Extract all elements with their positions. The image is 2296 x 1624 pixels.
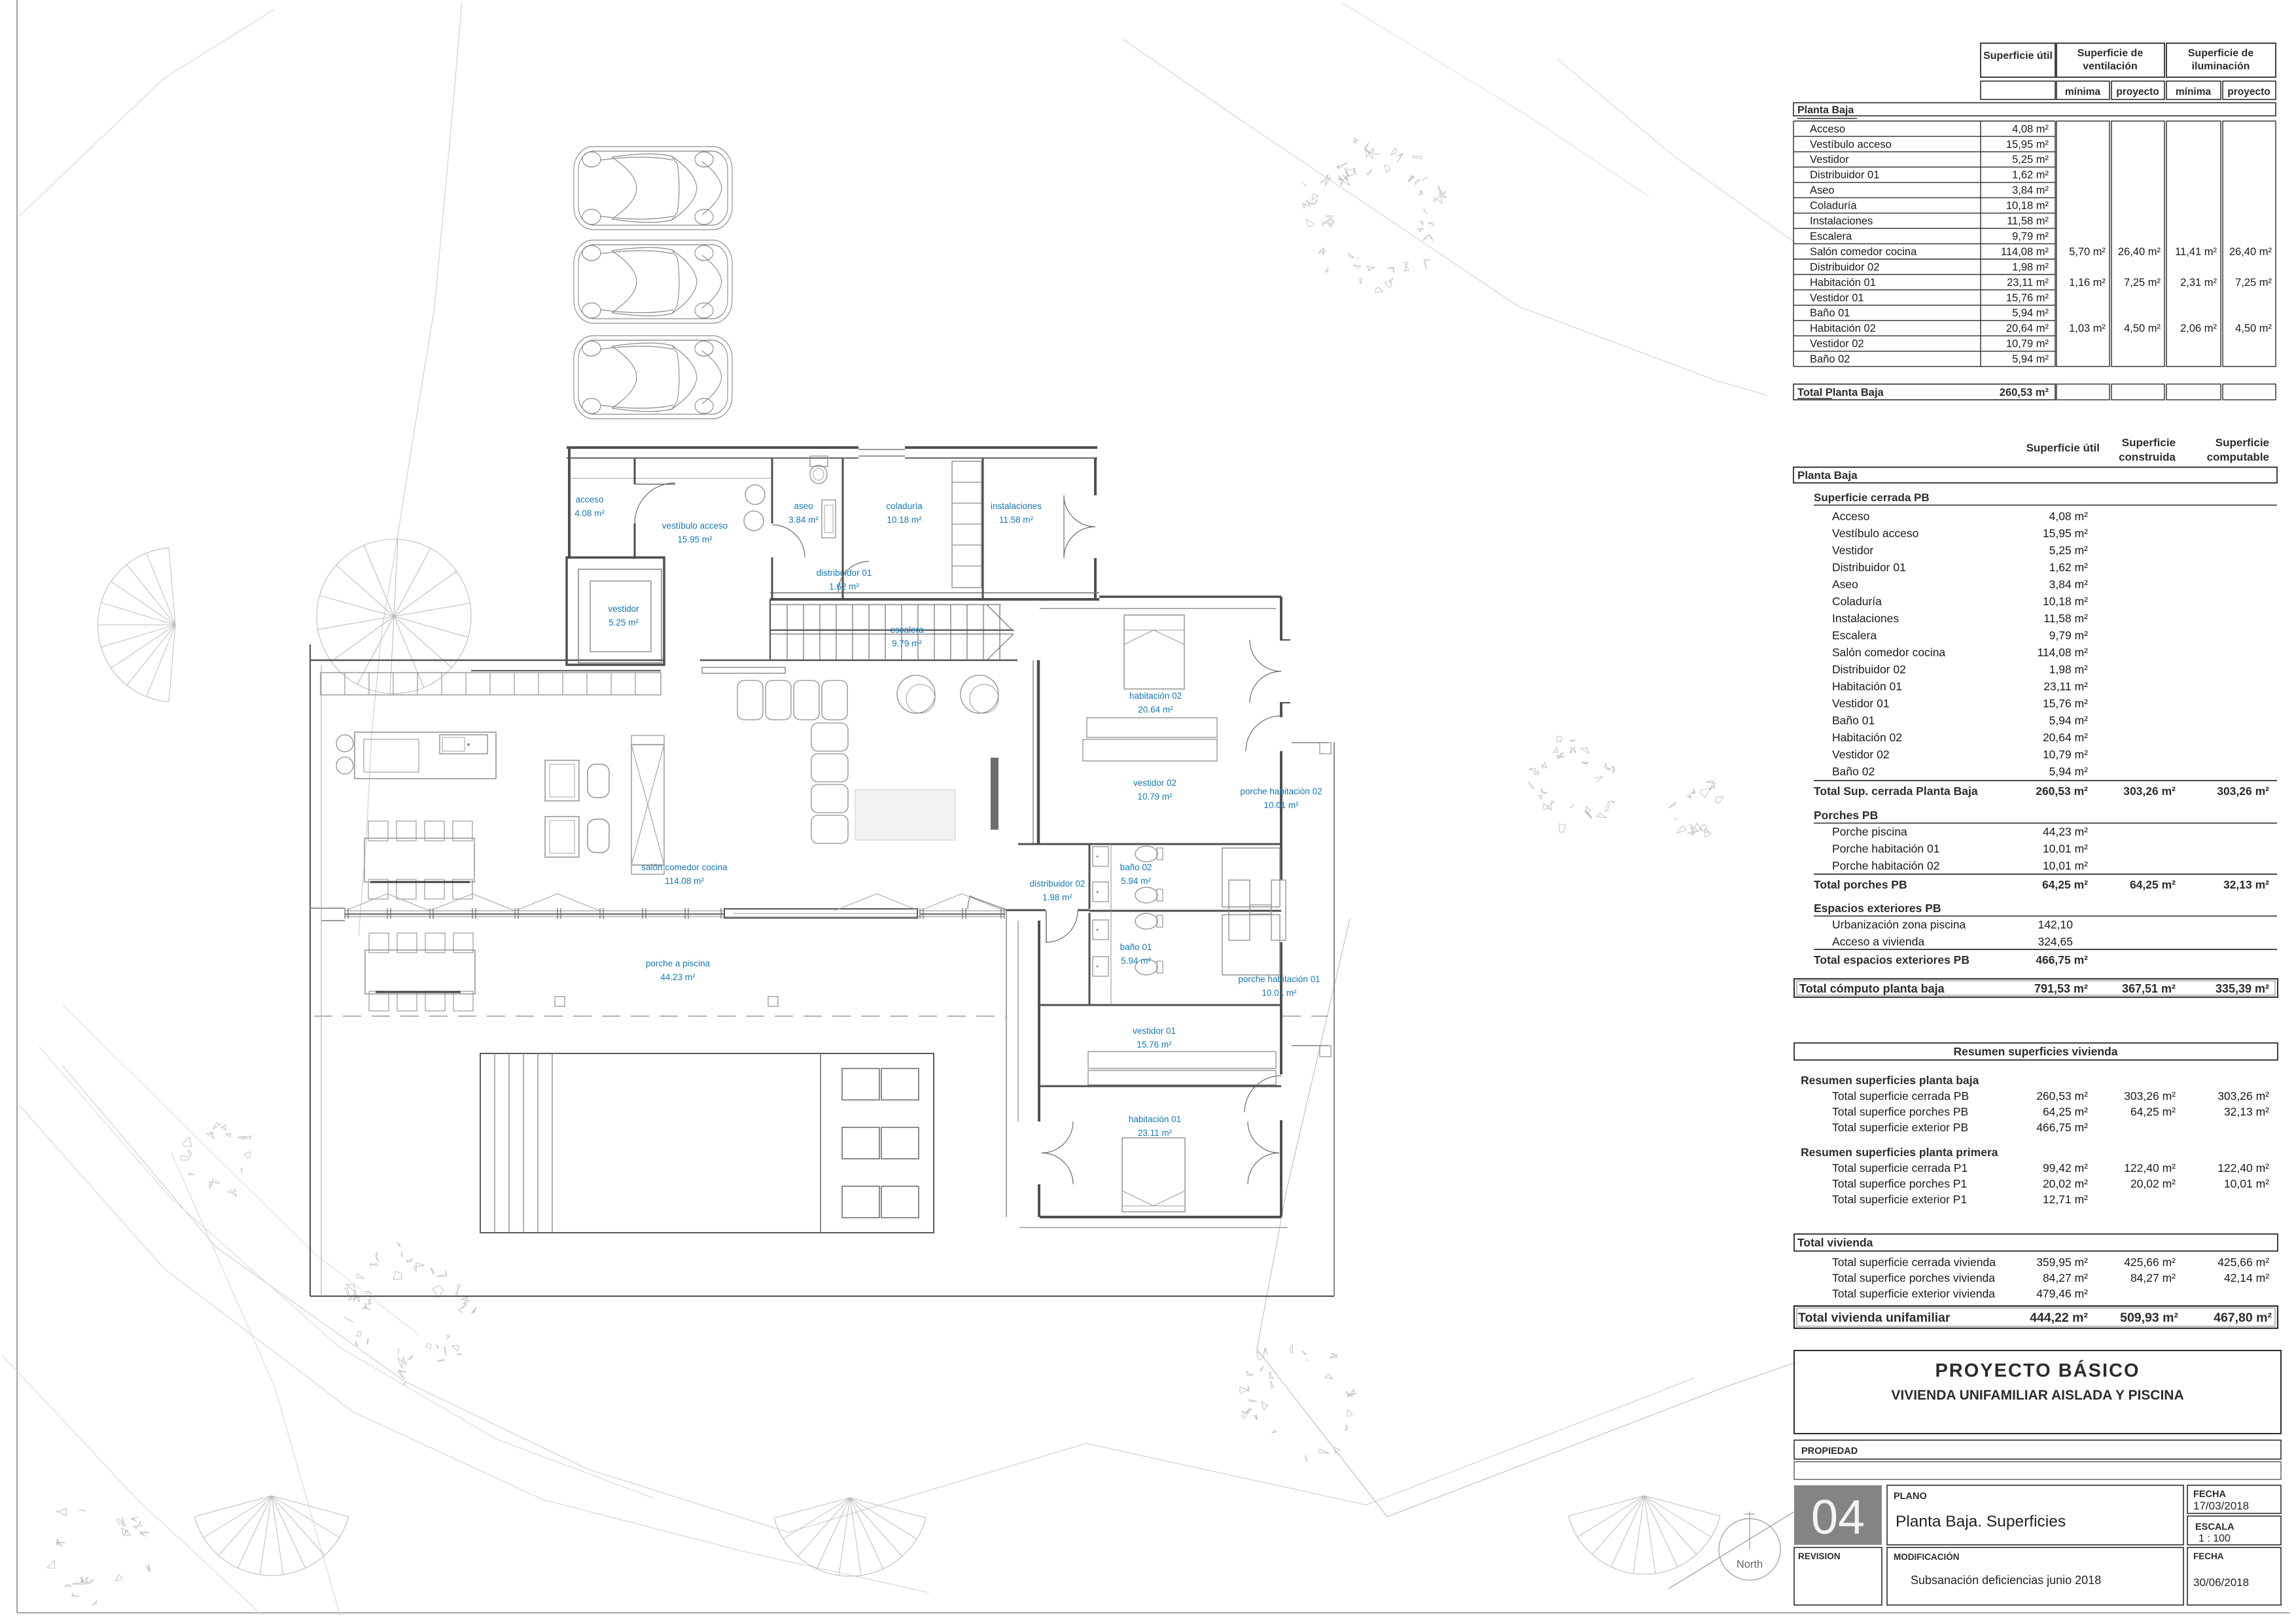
svg-text:20,02 m²: 20,02 m² <box>2043 1177 2088 1190</box>
svg-text:Habitación 02: Habitación 02 <box>1832 731 1902 744</box>
svg-text:5.94 m²: 5.94 m² <box>1121 956 1151 966</box>
svg-text:10,01 m²: 10,01 m² <box>2224 1177 2269 1190</box>
svg-text:Porche piscina: Porche piscina <box>1832 825 1907 838</box>
svg-text:mínima: mínima <box>2065 86 2101 97</box>
svg-text:23,11 m²: 23,11 m² <box>2043 680 2088 693</box>
svg-text:466,75 m²: 466,75 m² <box>2036 1121 2088 1134</box>
svg-text:Coladuría: Coladuría <box>1810 200 1857 212</box>
svg-text:15,95 m²: 15,95 m² <box>2006 139 2049 150</box>
svg-text:Vestidor 01: Vestidor 01 <box>1810 292 1864 304</box>
svg-text:Total superficie exterior vivi: Total superficie exterior vivienda <box>1832 1287 1995 1300</box>
svg-text:Porche habitación 02: Porche habitación 02 <box>1832 859 1939 872</box>
svg-text:computable: computable <box>2207 451 2269 463</box>
svg-text:Subsanación deficiencias juni: Subsanación deficiencias junio 2018 <box>1911 1574 2101 1587</box>
svg-text:64,25 m²: 64,25 m² <box>2042 878 2088 891</box>
svg-text:7,25 m²: 7,25 m² <box>2124 277 2161 289</box>
svg-text:114.08 m²: 114.08 m² <box>665 876 704 886</box>
svg-text:122,40 m²: 122,40 m² <box>2124 1161 2176 1174</box>
svg-text:Salón comedor cocina: Salón comedor cocina <box>1810 246 1917 258</box>
svg-text:5,70 m²: 5,70 m² <box>2069 246 2106 258</box>
svg-text:4,08 m²: 4,08 m² <box>2012 123 2049 135</box>
svg-text:Vestidor 02: Vestidor 02 <box>1832 748 1890 761</box>
svg-text:1,62 m²: 1,62 m² <box>2049 561 2088 574</box>
svg-text:Vestidor: Vestidor <box>1832 544 1873 557</box>
svg-text:construida: construida <box>2119 451 2176 463</box>
svg-text:11,41 m²: 11,41 m² <box>2175 246 2217 258</box>
svg-text:479,46 m²: 479,46 m² <box>2036 1287 2088 1300</box>
svg-text:Baño 02: Baño 02 <box>1810 353 1850 365</box>
svg-text:Total superficie cerrada vivie: Total superficie cerrada vivienda <box>1832 1256 1996 1269</box>
svg-text:Espacios exteriores PB: Espacios exteriores PB <box>1814 902 1941 915</box>
svg-text:10,01 m²: 10,01 m² <box>2043 859 2088 872</box>
svg-text:5,94 m²: 5,94 m² <box>2012 308 2049 319</box>
svg-text:habitación 02: habitación 02 <box>1129 691 1182 701</box>
svg-text:Total porches PB: Total porches PB <box>1814 878 1907 891</box>
svg-text:3.84 m²: 3.84 m² <box>788 515 819 525</box>
svg-text:1.62 m²: 1.62 m² <box>829 582 859 591</box>
svg-text:99,42 m²: 99,42 m² <box>2043 1161 2088 1174</box>
svg-text:367,51 m²: 367,51 m² <box>2122 982 2176 995</box>
svg-text:42,14 m²: 42,14 m² <box>2224 1271 2269 1284</box>
svg-text:PLANO: PLANO <box>1894 1491 1927 1502</box>
svg-text:44.23 m²: 44.23 m² <box>660 972 696 982</box>
svg-text:Total Planta Baja: Total Planta Baja <box>1797 387 1884 398</box>
svg-text:10.01 m²: 10.01 m² <box>1263 800 1299 810</box>
svg-text:Baño 02: Baño 02 <box>1832 765 1875 778</box>
svg-text:260,53 m²: 260,53 m² <box>2036 1089 2088 1103</box>
svg-text:26,40 m²: 26,40 m² <box>2229 246 2272 258</box>
svg-text:10,01 m²: 10,01 m² <box>2043 842 2088 855</box>
svg-text:Superficie de: Superficie de <box>2188 48 2254 59</box>
svg-text:20,64 m²: 20,64 m² <box>2006 323 2049 334</box>
svg-text:Total vivienda unifamiliar: Total vivienda unifamiliar <box>1798 1311 1951 1325</box>
svg-text:Total superficie exterior P1: Total superficie exterior P1 <box>1832 1193 1967 1206</box>
svg-text:proyecto: proyecto <box>2116 86 2159 97</box>
svg-text:Vestíbulo acceso: Vestíbulo acceso <box>1810 139 1892 150</box>
svg-text:11,58 m²: 11,58 m² <box>2043 612 2088 625</box>
svg-text:Total superficie exterior PB: Total superficie exterior PB <box>1832 1121 1968 1134</box>
svg-text:425,66 m²: 425,66 m² <box>2217 1256 2269 1269</box>
svg-text:260,53 m²: 260,53 m² <box>2036 785 2088 798</box>
svg-text:Acceso: Acceso <box>1832 510 1869 523</box>
svg-text:Resumen superficies vivienda: Resumen superficies vivienda <box>1954 1045 2118 1058</box>
svg-text:1,98 m²: 1,98 m² <box>2049 663 2088 676</box>
svg-text:64,25 m²: 64,25 m² <box>2130 1105 2176 1118</box>
svg-text:32,13 m²: 32,13 m² <box>2223 878 2269 891</box>
svg-text:15,95 m²: 15,95 m² <box>2043 527 2088 540</box>
svg-text:Resumen superficies planta baj: Resumen superficies planta baja <box>1801 1074 1979 1087</box>
svg-text:9,79 m²: 9,79 m² <box>2012 230 2049 242</box>
svg-text:habitación 01: habitación 01 <box>1129 1114 1181 1124</box>
svg-text:11.58 m²: 11.58 m² <box>999 515 1034 525</box>
svg-text:porche habitación 01: porche habitación 01 <box>1238 974 1320 984</box>
svg-text:359,95 m²: 359,95 m² <box>2036 1256 2088 1269</box>
svg-text:791,53 m²: 791,53 m² <box>2034 982 2088 995</box>
svg-text:9.79 m²: 9.79 m² <box>892 639 922 648</box>
svg-text:Habitación 01: Habitación 01 <box>1810 277 1876 289</box>
svg-text:MODIFICACIÓN: MODIFICACIÓN <box>1894 1552 1960 1562</box>
svg-text:20,64 m²: 20,64 m² <box>2043 731 2088 744</box>
svg-text:Acceso: Acceso <box>1810 123 1845 135</box>
svg-text:FECHA: FECHA <box>2193 1551 2224 1561</box>
svg-text:303,26 m²: 303,26 m² <box>2217 785 2269 798</box>
svg-text:324,65: 324,65 <box>2038 935 2073 948</box>
svg-text:Baño 01: Baño 01 <box>1832 714 1875 727</box>
svg-text:instalaciones: instalaciones <box>991 501 1042 511</box>
svg-text:Aseo: Aseo <box>1832 578 1858 591</box>
svg-text:distribuidor 02: distribuidor 02 <box>1030 879 1086 889</box>
svg-text:aseo: aseo <box>794 501 813 511</box>
svg-text:Aseo: Aseo <box>1810 185 1835 196</box>
svg-text:PROPIEDAD: PROPIEDAD <box>1801 1446 1858 1456</box>
svg-text:30/06/2018: 30/06/2018 <box>2193 1576 2249 1589</box>
svg-text:1,98 m²: 1,98 m² <box>2012 261 2049 273</box>
svg-text:Total superficie cerrada P1: Total superficie cerrada P1 <box>1832 1161 1968 1174</box>
svg-text:1 : 100: 1 : 100 <box>2199 1533 2231 1544</box>
svg-text:ventilación: ventilación <box>2083 61 2138 72</box>
svg-text:vestidor 02: vestidor 02 <box>1133 778 1176 788</box>
svg-text:Coladuría: Coladuría <box>1832 595 1882 608</box>
svg-text:15,76 m²: 15,76 m² <box>2006 292 2049 304</box>
svg-text:64,25 m²: 64,25 m² <box>2130 878 2176 891</box>
svg-text:10,79 m²: 10,79 m² <box>2006 338 2049 350</box>
svg-text:4,50 m²: 4,50 m² <box>2124 323 2161 334</box>
svg-text:84,27 m²: 84,27 m² <box>2043 1271 2088 1284</box>
svg-text:Porches PB: Porches PB <box>1814 809 1878 822</box>
svg-text:PROYECTO BÁSICO: PROYECTO BÁSICO <box>1935 1359 2140 1381</box>
svg-text:Distribuidor 02: Distribuidor 02 <box>1832 663 1906 676</box>
svg-text:Superficie de: Superficie de <box>2077 48 2144 59</box>
svg-text:5,94 m²: 5,94 m² <box>2049 714 2088 727</box>
svg-text:Vestidor 02: Vestidor 02 <box>1810 338 1864 350</box>
svg-text:84,27 m²: 84,27 m² <box>2130 1271 2176 1284</box>
svg-text:122,40 m²: 122,40 m² <box>2217 1161 2269 1174</box>
svg-text:142,10: 142,10 <box>2038 918 2073 931</box>
svg-text:ESCALA: ESCALA <box>2195 1522 2234 1532</box>
svg-text:porche a piscina: porche a piscina <box>646 959 711 968</box>
svg-text:5,94 m²: 5,94 m² <box>2012 353 2049 365</box>
svg-text:Porche habitación 01: Porche habitación 01 <box>1832 842 1939 855</box>
svg-text:15.76 m²: 15.76 m² <box>1137 1040 1172 1050</box>
svg-text:10.18 m²: 10.18 m² <box>887 515 922 525</box>
svg-text:10.01 m²: 10.01 m² <box>1262 988 1297 998</box>
svg-text:260,53 m²: 260,53 m² <box>2000 387 2049 398</box>
svg-text:Baño 01: Baño 01 <box>1810 308 1850 319</box>
svg-text:509,93 m²: 509,93 m² <box>2120 1311 2178 1325</box>
svg-text:15.95 m²: 15.95 m² <box>677 535 713 544</box>
svg-text:26,40 m²: 26,40 m² <box>2118 246 2161 258</box>
svg-text:Total superfice porches vivien: Total superfice porches vivienda <box>1832 1271 1995 1284</box>
svg-text:Resumen superficies planta pri: Resumen superficies planta primera <box>1801 1146 1998 1159</box>
svg-text:23.11 m²: 23.11 m² <box>1138 1128 1173 1138</box>
svg-text:acceso: acceso <box>576 495 604 504</box>
svg-text:10.79 m²: 10.79 m² <box>1137 792 1173 802</box>
svg-text:Planta Baja: Planta Baja <box>1797 469 1858 482</box>
svg-text:5.94 m²: 5.94 m² <box>1121 876 1151 886</box>
svg-text:Vestidor 01: Vestidor 01 <box>1832 697 1890 710</box>
svg-text:Total cómputo planta baja: Total cómputo planta baja <box>1799 982 1945 995</box>
svg-text:baño 01: baño 01 <box>1120 942 1152 952</box>
svg-text:Distribuidor 01: Distribuidor 01 <box>1832 561 1906 574</box>
svg-text:5,25 m²: 5,25 m² <box>2049 544 2088 557</box>
svg-text:444,22 m²: 444,22 m² <box>2030 1311 2088 1325</box>
svg-text:04: 04 <box>1811 1490 1865 1544</box>
svg-text:Instalaciones: Instalaciones <box>1832 612 1899 625</box>
svg-text:Planta Baja: Planta Baja <box>1797 105 1854 116</box>
svg-text:3,84 m²: 3,84 m² <box>2049 578 2088 591</box>
svg-text:Superficie: Superficie <box>2122 436 2176 449</box>
svg-text:mínima: mínima <box>2176 86 2212 97</box>
svg-text:porche habitación 02: porche habitación 02 <box>1240 786 1322 796</box>
svg-text:Total Sup. cerrada Planta Baja: Total Sup. cerrada Planta Baja <box>1814 785 1978 798</box>
svg-text:335,39 m²: 335,39 m² <box>2216 982 2269 995</box>
svg-text:VIVIENDA UNIFAMILIAR AISLADA Y: VIVIENDA UNIFAMILIAR AISLADA Y PISCINA <box>1891 1388 2183 1403</box>
svg-text:15,76 m²: 15,76 m² <box>2043 697 2088 710</box>
svg-text:vestíbulo acceso: vestíbulo acceso <box>662 521 728 531</box>
svg-text:5,94 m²: 5,94 m² <box>2049 765 2088 778</box>
svg-text:proyecto: proyecto <box>2227 86 2270 97</box>
svg-text:Habitación 02: Habitación 02 <box>1810 323 1876 334</box>
svg-text:467,80 m²: 467,80 m² <box>2214 1311 2272 1325</box>
svg-text:4,08 m²: 4,08 m² <box>2049 510 2088 523</box>
svg-text:64,25 m²: 64,25 m² <box>2043 1105 2088 1118</box>
svg-text:20,02 m²: 20,02 m² <box>2130 1177 2176 1190</box>
svg-text:Total superfice porches P1: Total superfice porches P1 <box>1832 1177 1967 1190</box>
svg-text:4.08 m²: 4.08 m² <box>574 508 605 518</box>
svg-text:Superficie: Superficie <box>2216 436 2269 449</box>
svg-text:32,13 m²: 32,13 m² <box>2224 1105 2269 1118</box>
svg-text:303,26 m²: 303,26 m² <box>2123 785 2176 798</box>
svg-text:1,16 m²: 1,16 m² <box>2069 277 2106 289</box>
svg-text:Instalaciones: Instalaciones <box>1810 215 1873 227</box>
svg-text:10,79 m²: 10,79 m² <box>2043 748 2088 761</box>
svg-text:baño 02: baño 02 <box>1120 862 1152 872</box>
svg-text:7,25 m²: 7,25 m² <box>2235 277 2272 289</box>
svg-text:1,62 m²: 1,62 m² <box>2012 169 2049 181</box>
svg-text:17/03/2018: 17/03/2018 <box>2193 1500 2249 1512</box>
svg-text:Urbanización zona piscina: Urbanización zona piscina <box>1832 918 1966 931</box>
svg-text:Vestíbulo acceso: Vestíbulo acceso <box>1832 527 1918 540</box>
svg-text:2,06 m²: 2,06 m² <box>2180 323 2217 334</box>
svg-text:303,26 m²: 303,26 m² <box>2217 1089 2269 1103</box>
svg-text:114,08 m²: 114,08 m² <box>2038 646 2089 659</box>
svg-text:salón comedor cocina: salón comedor cocina <box>641 862 728 872</box>
svg-text:FECHA: FECHA <box>2193 1489 2226 1500</box>
svg-text:114,08 m²: 114,08 m² <box>2001 246 2049 258</box>
svg-text:vestidor: vestidor <box>608 604 639 614</box>
svg-text:Planta Baja. Superficies: Planta Baja. Superficies <box>1896 1513 2066 1530</box>
svg-text:Escalera: Escalera <box>1810 230 1852 242</box>
svg-text:Total superficie cerrada PB: Total superficie cerrada PB <box>1832 1089 1969 1103</box>
svg-text:3,84 m²: 3,84 m² <box>2012 185 2049 196</box>
svg-text:5,25 m²: 5,25 m² <box>2012 154 2049 166</box>
svg-text:Distribuidor 02: Distribuidor 02 <box>1810 261 1879 273</box>
svg-text:1,03 m²: 1,03 m² <box>2069 323 2106 334</box>
svg-text:1.98 m²: 1.98 m² <box>1042 892 1072 902</box>
svg-text:Superficie útil: Superficie útil <box>2026 442 2100 454</box>
svg-text:North: North <box>1737 1559 1763 1570</box>
svg-text:10,18 m²: 10,18 m² <box>2043 595 2088 608</box>
svg-text:23,11 m²: 23,11 m² <box>2007 277 2049 289</box>
svg-text:Escalera: Escalera <box>1832 629 1877 642</box>
svg-text:425,66 m²: 425,66 m² <box>2124 1256 2176 1269</box>
svg-text:Total espacios exteriores PB: Total espacios exteriores PB <box>1814 953 1969 966</box>
svg-text:2,31 m²: 2,31 m² <box>2180 277 2217 289</box>
svg-text:Habitación 01: Habitación 01 <box>1832 680 1902 693</box>
svg-text:466,75 m²: 466,75 m² <box>2036 953 2088 966</box>
svg-text:vestidor 01: vestidor 01 <box>1133 1026 1176 1036</box>
svg-text:Distribuidor 01: Distribuidor 01 <box>1810 169 1879 181</box>
svg-text:10,18 m²: 10,18 m² <box>2006 200 2049 212</box>
svg-text:44,23 m²: 44,23 m² <box>2043 825 2088 838</box>
svg-text:distribuidor 01: distribuidor 01 <box>817 568 872 578</box>
svg-text:20.64 m²: 20.64 m² <box>1138 705 1173 715</box>
svg-text:Salón comedor cocina: Salón comedor cocina <box>1832 646 1945 659</box>
svg-text:Total superfice porches PB: Total superfice porches PB <box>1832 1105 1968 1118</box>
svg-text:iluminación: iluminación <box>2192 61 2250 72</box>
svg-text:4,50 m²: 4,50 m² <box>2235 323 2272 334</box>
svg-text:9,79 m²: 9,79 m² <box>2049 629 2088 642</box>
svg-text:Superficie cerrada PB: Superficie cerrada PB <box>1814 491 1930 504</box>
svg-text:12,71 m²: 12,71 m² <box>2043 1193 2088 1206</box>
svg-text:Acceso a vivienda: Acceso a vivienda <box>1832 935 1924 948</box>
svg-text:escalera: escalera <box>890 625 924 635</box>
svg-text:Total vivienda: Total vivienda <box>1797 1236 1873 1249</box>
svg-text:303,26 m²: 303,26 m² <box>2124 1089 2176 1103</box>
svg-text:5.25 m²: 5.25 m² <box>609 618 639 627</box>
svg-text:REVISION: REVISION <box>1798 1551 1841 1561</box>
svg-text:Vestidor: Vestidor <box>1810 154 1849 166</box>
svg-text:Superficie útil: Superficie útil <box>1983 50 2053 62</box>
svg-text:coladuría: coladuría <box>886 501 923 511</box>
svg-text:11,58 m²: 11,58 m² <box>2007 215 2049 227</box>
